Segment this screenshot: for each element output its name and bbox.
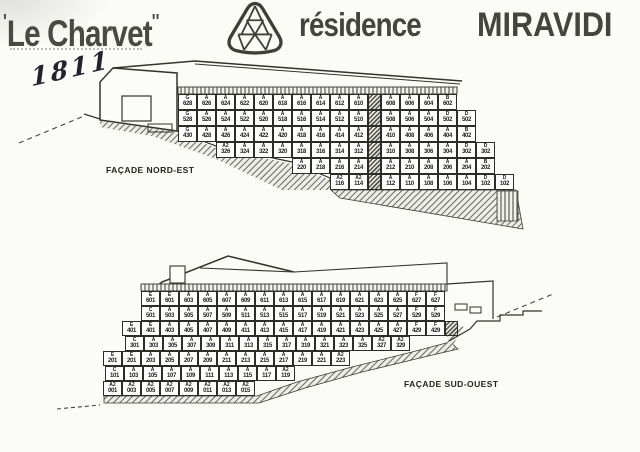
unit-number: 423 xyxy=(355,328,364,335)
unit-number: 117 xyxy=(262,373,271,380)
unit-number: 509 xyxy=(222,313,231,320)
unit-number: 305 xyxy=(168,343,177,350)
unit-cell: A103 xyxy=(124,366,143,381)
unit-cell: E601 xyxy=(160,291,179,306)
unit-cell: E201 xyxy=(103,351,122,366)
unit-number: 503 xyxy=(165,313,174,320)
facade-row: E601E601A603A605A607A609A611A613A615A617… xyxy=(141,291,445,306)
unit-number: 115 xyxy=(243,373,252,380)
unit-cell: A325 xyxy=(353,336,372,351)
unit-cell: A117 xyxy=(257,366,276,381)
unit-cell: A419 xyxy=(312,321,331,336)
unit-cell: C301 xyxy=(125,336,144,351)
unit-cell: E201 xyxy=(122,351,141,366)
unit-cell: A109 xyxy=(181,366,200,381)
unit-cell: A613 xyxy=(274,291,293,306)
unit-number: 601 xyxy=(146,298,155,305)
unit-cell: A2011 xyxy=(198,381,217,396)
unit-cell: A315 xyxy=(258,336,277,351)
unit-number: 319 xyxy=(301,343,310,350)
unit-number: 101 xyxy=(110,373,119,380)
unit-number: 317 xyxy=(282,343,291,350)
unit-number: 421 xyxy=(336,328,345,335)
unit-number: 615 xyxy=(298,298,307,305)
unit-cell: E601 xyxy=(141,291,160,306)
unit-cell: A105 xyxy=(143,366,162,381)
unit-number: 217 xyxy=(279,358,288,365)
unit-cell: A113 xyxy=(219,366,238,381)
unit-cell: A115 xyxy=(238,366,257,381)
unit-cell: A617 xyxy=(312,291,331,306)
unit-cell: C101 xyxy=(105,366,124,381)
unit-number: 213 xyxy=(241,358,250,365)
unit-number: 301 xyxy=(130,343,139,350)
unit-number: 521 xyxy=(336,313,345,320)
unit-cell: A2001 xyxy=(103,381,122,396)
unit-cell: A2009 xyxy=(179,381,198,396)
unit-number: 207 xyxy=(184,358,193,365)
unit-cell: A425 xyxy=(369,321,388,336)
unit-number: 609 xyxy=(241,298,250,305)
unit-cell: A609 xyxy=(236,291,255,306)
stairwell-hatch xyxy=(445,321,458,336)
unit-number: 307 xyxy=(187,343,196,350)
unit-cell: A413 xyxy=(255,321,274,336)
unit-number: 201 xyxy=(108,358,117,365)
unit-number: 603 xyxy=(184,298,193,305)
unit-cell: A2005 xyxy=(141,381,160,396)
unit-cell: A607 xyxy=(217,291,236,306)
facade-row: C501A503A505A507A509A511A513A515A517A519… xyxy=(141,306,445,321)
unit-cell: F627 xyxy=(407,291,426,306)
unit-cell: A507 xyxy=(198,306,217,321)
unit-cell: F529 xyxy=(407,306,426,321)
unit-number: 501 xyxy=(146,313,155,320)
unit-number: 221 xyxy=(317,358,326,365)
unit-cell: A2003 xyxy=(122,381,141,396)
unit-cell: A505 xyxy=(179,306,198,321)
unit-number: 627 xyxy=(431,298,440,305)
unit-cell: A2007 xyxy=(160,381,179,396)
unit-number: 325 xyxy=(358,343,367,350)
unit-cell: F627 xyxy=(426,291,445,306)
unit-number: 605 xyxy=(203,298,212,305)
unit-cell: A209 xyxy=(198,351,217,366)
unit-cell: A405 xyxy=(179,321,198,336)
facade-sud-ouest: E601E601A603A605A607A609A611A613A615A617… xyxy=(0,0,640,452)
unit-number: 617 xyxy=(317,298,326,305)
unit-cell: A305 xyxy=(163,336,182,351)
unit-number: 429 xyxy=(431,328,440,335)
unit-number: 513 xyxy=(260,313,269,320)
unit-number: 203 xyxy=(146,358,155,365)
unit-cell: A525 xyxy=(369,306,388,321)
unit-number: 009 xyxy=(184,388,193,395)
unit-number: 315 xyxy=(263,343,272,350)
unit-cell: A317 xyxy=(277,336,296,351)
unit-cell: A2327 xyxy=(372,336,391,351)
unit-number: 005 xyxy=(146,388,155,395)
unit-cell: A215 xyxy=(255,351,274,366)
unit-cell: A423 xyxy=(350,321,369,336)
unit-number: 419 xyxy=(317,328,326,335)
unit-cell: A619 xyxy=(331,291,350,306)
unit-number: 209 xyxy=(203,358,212,365)
unit-number: 113 xyxy=(224,373,233,380)
unit-number: 627 xyxy=(412,298,421,305)
unit-number: 515 xyxy=(279,313,288,320)
unit-cell: A427 xyxy=(388,321,407,336)
unit-cell: A411 xyxy=(236,321,255,336)
unit-number: 601 xyxy=(165,298,174,305)
unit-cell: A2015 xyxy=(236,381,255,396)
unit-number: 111 xyxy=(205,373,213,380)
unit-number: 201 xyxy=(127,358,136,365)
unit-cell: A521 xyxy=(331,306,350,321)
unit-cell: A205 xyxy=(160,351,179,366)
unit-number: 003 xyxy=(127,388,136,395)
unit-number: 607 xyxy=(222,298,231,305)
unit-number: 311 xyxy=(225,343,234,350)
facade-row: A2001A2003A2005A2007A2009A2011A2013A2015 xyxy=(103,381,255,396)
unit-cell: A623 xyxy=(369,291,388,306)
unit-cell: E401 xyxy=(141,321,160,336)
facade-row: E401E401A403A405A407A409A411A413A415A417… xyxy=(122,321,458,336)
unit-number: 215 xyxy=(260,358,269,365)
unit-cell: A217 xyxy=(274,351,293,366)
unit-number: 415 xyxy=(279,328,288,335)
unit-cell: C501 xyxy=(141,306,160,321)
unit-cell: A415 xyxy=(274,321,293,336)
unit-cell: A509 xyxy=(217,306,236,321)
unit-number: 321 xyxy=(320,343,329,350)
unit-number: 109 xyxy=(186,373,195,380)
unit-number: 015 xyxy=(241,388,250,395)
unit-number: 613 xyxy=(279,298,288,305)
unit-number: 519 xyxy=(317,313,326,320)
unit-cell: A513 xyxy=(255,306,274,321)
unit-cell: A207 xyxy=(179,351,198,366)
unit-number: 223 xyxy=(336,358,345,365)
unit-number: 303 xyxy=(149,343,158,350)
unit-number: 107 xyxy=(167,373,176,380)
unit-number: 007 xyxy=(165,388,174,395)
unit-number: 409 xyxy=(222,328,231,335)
unit-number: 427 xyxy=(393,328,402,335)
unit-number: 011 xyxy=(203,388,212,395)
unit-cell: A213 xyxy=(236,351,255,366)
unit-cell: A211 xyxy=(217,351,236,366)
unit-number: 001 xyxy=(108,388,117,395)
unit-cell: A511 xyxy=(236,306,255,321)
unit-cell: A313 xyxy=(239,336,258,351)
facade-row: C301A303A305A307A309A311A313A315A317A319… xyxy=(125,336,410,351)
unit-cell: A621 xyxy=(350,291,369,306)
unit-number: 411 xyxy=(241,328,250,335)
unit-cell: A527 xyxy=(388,306,407,321)
unit-number: 505 xyxy=(184,313,193,320)
unit-cell: A203 xyxy=(141,351,160,366)
unit-number: 625 xyxy=(393,298,402,305)
unit-number: 211 xyxy=(222,358,231,365)
unit-number: 403 xyxy=(165,328,174,335)
unit-number: 611 xyxy=(260,298,269,305)
unit-cell: A417 xyxy=(293,321,312,336)
unit-cell: A107 xyxy=(162,366,181,381)
unit-number: 507 xyxy=(203,313,212,320)
unit-number: 527 xyxy=(393,313,402,320)
unit-cell: A517 xyxy=(293,306,312,321)
unit-number: 329 xyxy=(396,343,405,350)
unit-cell: A319 xyxy=(296,336,315,351)
unit-cell: A323 xyxy=(334,336,353,351)
unit-cell: A421 xyxy=(331,321,350,336)
unit-number: 619 xyxy=(336,298,345,305)
unit-number: 621 xyxy=(355,298,364,305)
unit-cell: A407 xyxy=(198,321,217,336)
unit-number: 323 xyxy=(339,343,348,350)
unit-number: 525 xyxy=(374,313,383,320)
unit-number: 407 xyxy=(203,328,212,335)
unit-cell: A2329 xyxy=(391,336,410,351)
unit-number: 205 xyxy=(165,358,174,365)
unit-cell: A515 xyxy=(274,306,293,321)
unit-number: 105 xyxy=(148,373,157,380)
unit-number: 405 xyxy=(184,328,193,335)
unit-cell: A519 xyxy=(312,306,331,321)
unit-cell: A625 xyxy=(388,291,407,306)
unit-cell: F429 xyxy=(426,321,445,336)
unit-number: 219 xyxy=(298,358,307,365)
unit-cell: A309 xyxy=(201,336,220,351)
unit-number: 425 xyxy=(374,328,383,335)
unit-cell: A503 xyxy=(160,306,179,321)
unit-cell: A403 xyxy=(160,321,179,336)
unit-cell: E401 xyxy=(122,321,141,336)
unit-number: 529 xyxy=(412,313,421,320)
unit-cell: A303 xyxy=(144,336,163,351)
unit-number: 309 xyxy=(206,343,215,350)
unit-cell: A307 xyxy=(182,336,201,351)
unit-number: 523 xyxy=(355,313,364,320)
unit-cell: A409 xyxy=(217,321,236,336)
unit-number: 313 xyxy=(244,343,253,350)
unit-number: 429 xyxy=(412,328,421,335)
unit-cell: A603 xyxy=(179,291,198,306)
unit-cell: A111 xyxy=(200,366,219,381)
unit-cell: A219 xyxy=(293,351,312,366)
unit-number: 417 xyxy=(298,328,307,335)
unit-cell: A2223 xyxy=(331,351,350,366)
unit-number: 529 xyxy=(431,313,440,320)
unit-number: 401 xyxy=(146,328,155,335)
scanned-plan-page: 'Le Charvet'' résidence MIRAVIDI 1811 xyxy=(0,0,640,452)
facade-row: C101A103A105A107A109A111A113A115A117A211… xyxy=(105,366,295,381)
unit-cell: A615 xyxy=(293,291,312,306)
unit-number: 401 xyxy=(127,328,136,335)
unit-number: 511 xyxy=(241,313,250,320)
unit-number: 327 xyxy=(377,343,386,350)
unit-number: 517 xyxy=(298,313,307,320)
unit-cell: A611 xyxy=(255,291,274,306)
unit-cell: A321 xyxy=(315,336,334,351)
unit-cell: A605 xyxy=(198,291,217,306)
unit-cell: A221 xyxy=(312,351,331,366)
unit-cell: A311 xyxy=(220,336,239,351)
unit-number: 413 xyxy=(260,328,269,335)
unit-cell: F429 xyxy=(407,321,426,336)
facade-row: E201E201A203A205A207A209A211A213A215A217… xyxy=(103,351,350,366)
unit-number: 013 xyxy=(222,388,231,395)
unit-cell: A523 xyxy=(350,306,369,321)
unit-cell: A2119 xyxy=(276,366,295,381)
unit-cell: F529 xyxy=(426,306,445,321)
unit-number: 119 xyxy=(281,373,290,380)
unit-number: 623 xyxy=(374,298,383,305)
unit-cell: A2013 xyxy=(217,381,236,396)
unit-number: 103 xyxy=(129,373,138,380)
